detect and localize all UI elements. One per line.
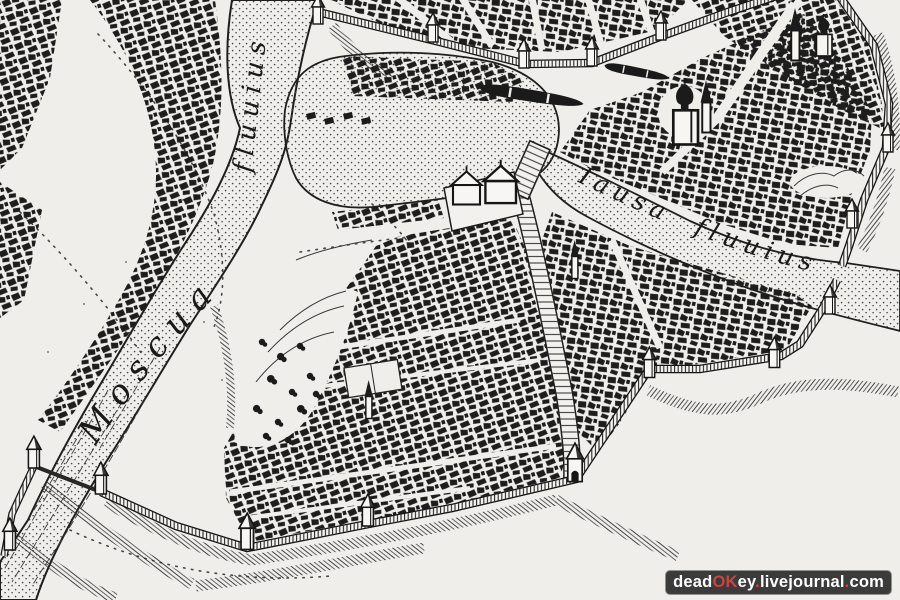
watermark-seg-livejournal: livejournal bbox=[760, 573, 845, 591]
wall-tower bbox=[312, 0, 325, 24]
watermark-seg-ey: ey bbox=[738, 573, 756, 591]
watermark-text: deadOKey.livejournal.com bbox=[673, 574, 884, 591]
watermark-seg-dead: dead bbox=[673, 573, 712, 591]
engraved-city-map: Moscua fluuius Iausa fluuius deadOKey.li… bbox=[0, 0, 900, 600]
hill-clearing-yauza bbox=[790, 166, 862, 198]
map-canvas: Moscua fluuius Iausa fluuius bbox=[0, 0, 900, 600]
watermark-seg-com: com bbox=[849, 573, 884, 591]
watermark-seg-ok: OK bbox=[712, 573, 737, 591]
watermark-badge: deadOKey.livejournal.com bbox=[665, 570, 892, 595]
